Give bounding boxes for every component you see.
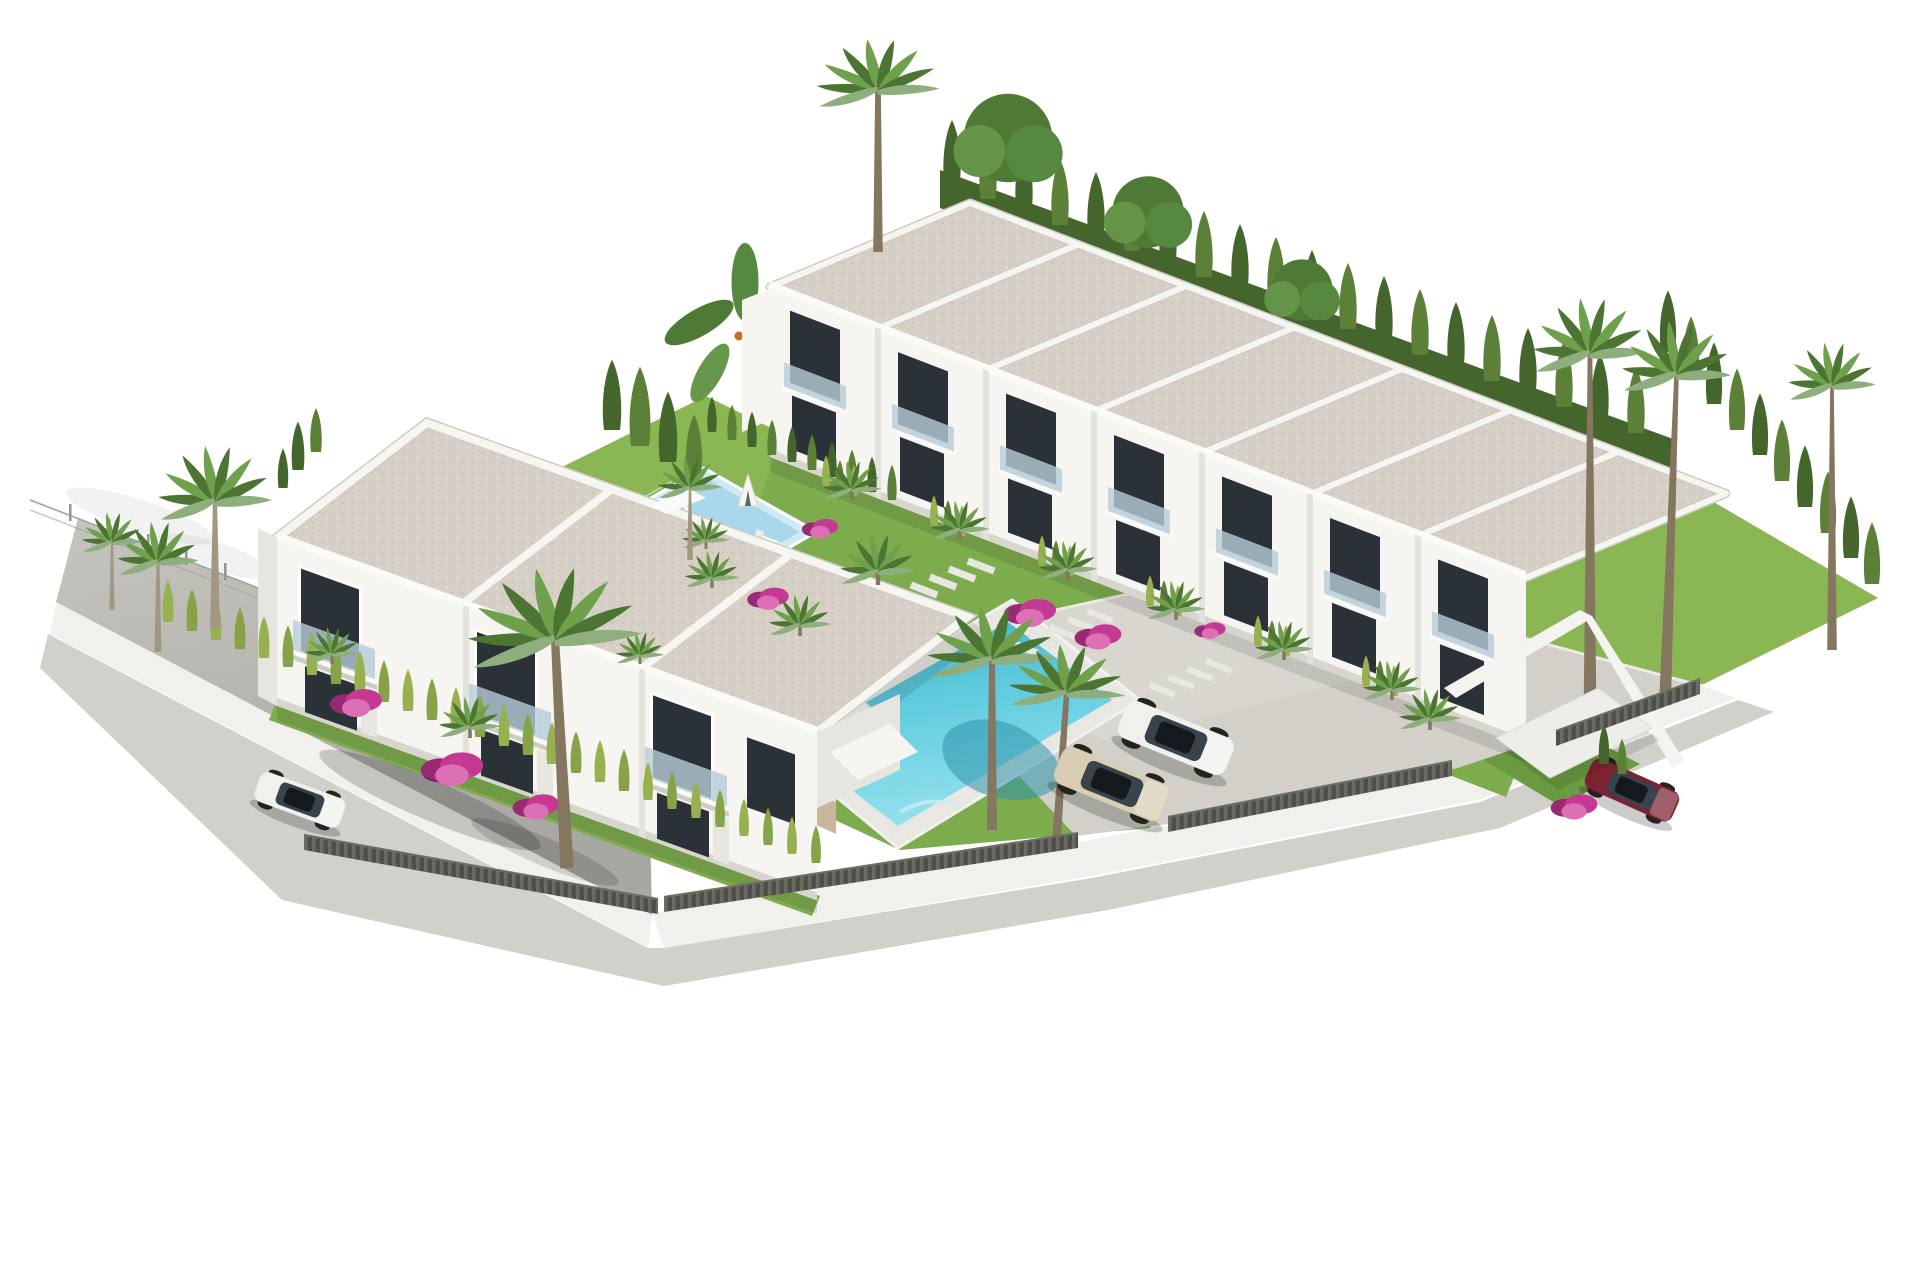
render-canvas xyxy=(0,0,1920,1280)
row-entry-volume xyxy=(742,289,770,432)
scene-root xyxy=(0,0,1920,1280)
garden-tree xyxy=(1104,176,1192,247)
garden-tree xyxy=(953,94,1062,182)
cypress-behind-left-building xyxy=(278,408,322,488)
